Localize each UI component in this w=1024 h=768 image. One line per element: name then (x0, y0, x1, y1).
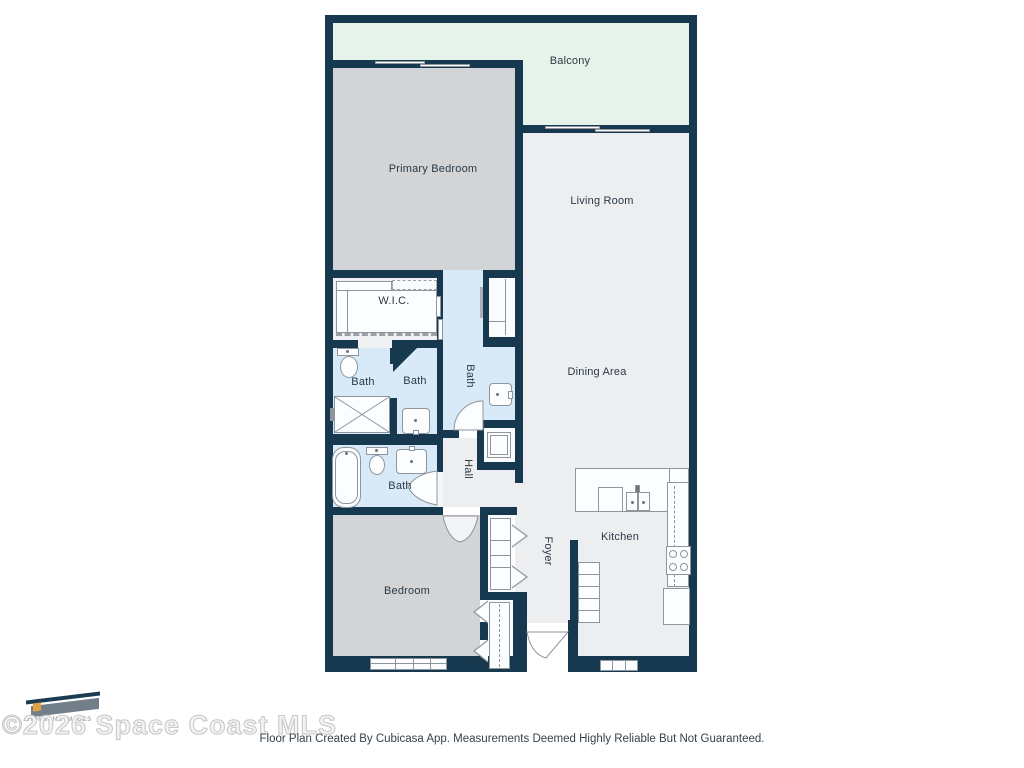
room-label-bath-lower: Bath (388, 480, 411, 492)
toilet-flush (346, 350, 349, 353)
toilet-icon (369, 455, 385, 475)
floor-plan: Balcony Primary Bedroom Living Room Dini… (325, 15, 697, 672)
shower-control (330, 408, 334, 421)
room-label-bedroom: Bedroom (384, 585, 430, 597)
window-mullion (430, 658, 431, 670)
room-label-bath-middle: Bath (403, 375, 426, 387)
sliding-door (595, 129, 650, 132)
window-mullion (371, 663, 446, 664)
wall-segment (325, 15, 697, 23)
wall-segment (480, 622, 488, 640)
room-label-living-room: Living Room (570, 195, 633, 207)
closet-shelf (489, 321, 505, 322)
pantry-shelf (578, 586, 600, 587)
sink-drain (642, 501, 645, 504)
sink-drain (414, 419, 417, 422)
room-label-bath-left: Bath (351, 376, 374, 388)
room-label-hall: Hall (462, 459, 474, 479)
shower-icon (334, 396, 390, 433)
room-label-foyer: Foyer (542, 536, 554, 565)
faucet-icon (508, 391, 513, 399)
closet-divider (347, 291, 348, 332)
window (600, 660, 638, 671)
tub-faucet (345, 452, 348, 455)
refrigerator-icon (663, 588, 690, 625)
toilet-flush (375, 449, 378, 452)
closet-rod (336, 330, 437, 336)
pantry-shelf (578, 610, 600, 611)
closet-divider (505, 279, 506, 335)
closet-rod (499, 604, 500, 667)
window (370, 658, 447, 670)
disclaimer-text: Floor Plan Created By Cubicasa App. Meas… (0, 733, 1024, 745)
wall-segment (568, 620, 578, 672)
wall-segment (483, 278, 489, 338)
window-mullion (612, 660, 613, 671)
living-dining-floor (523, 133, 689, 656)
sink-drain (410, 460, 413, 463)
sink-drain (631, 501, 634, 504)
closet-shelves (490, 518, 511, 590)
window-mullion (625, 660, 626, 671)
wall-segment (325, 507, 443, 515)
dishwasher-icon (598, 487, 623, 512)
wall-segment (437, 445, 443, 472)
room-label-primary-bedroom: Primary Bedroom (389, 163, 478, 175)
towel-bar (480, 287, 483, 318)
sliding-door (420, 64, 470, 67)
entry-alcove (527, 623, 568, 672)
window-mullion (413, 658, 414, 670)
pocket-door (438, 319, 443, 340)
door-opening (358, 340, 392, 348)
washer-inner (490, 435, 508, 455)
room-label-dining-area: Dining Area (567, 366, 626, 378)
window-mullion (395, 658, 396, 670)
linen-closet-floor (489, 278, 515, 341)
wall-segment (325, 434, 443, 445)
room-label-bath-primary: Bath (464, 364, 476, 387)
closet-shelf (490, 555, 511, 556)
sliding-door (545, 126, 600, 129)
burner-icon (680, 550, 688, 558)
wall-segment (570, 540, 578, 623)
wall-segment (325, 270, 443, 278)
wall-segment (480, 592, 517, 600)
burner-icon (669, 563, 677, 571)
wall-segment (517, 623, 527, 631)
pantry-shelf (578, 574, 600, 575)
closet-shelf (490, 567, 511, 568)
wall-segment (480, 515, 488, 592)
burner-icon (669, 550, 677, 558)
pocket-door (436, 296, 441, 317)
sink-drain (496, 393, 499, 396)
room-label-kitchen: Kitchen (601, 531, 639, 543)
door-opening (437, 472, 443, 507)
wall-segment (483, 337, 515, 347)
pantry-shelves (578, 562, 600, 623)
faucet-icon (635, 485, 640, 493)
pantry-shelf (578, 598, 600, 599)
room-label-wic: W.I.C. (378, 295, 409, 307)
bathtub-inner (335, 451, 358, 504)
balcony-floor (523, 23, 689, 133)
toilet-icon (340, 356, 358, 378)
wall-segment (437, 348, 443, 434)
faucet-icon (413, 430, 419, 435)
closet-shelf-dashed (392, 280, 437, 290)
wall-segment (513, 592, 527, 672)
burner-icon (680, 563, 688, 571)
wall-segment (437, 430, 459, 438)
wall-segment (480, 507, 517, 515)
door-opening (390, 364, 397, 398)
closet-shelf (490, 540, 511, 541)
faucet-icon (409, 446, 415, 451)
watermark: HOFMANN IMAGES ©2026 Space Coast MLS (0, 690, 300, 760)
sliding-door (375, 61, 425, 64)
room-label-balcony: Balcony (550, 55, 591, 67)
wall-segment (477, 462, 523, 470)
wall-segment (483, 270, 523, 278)
